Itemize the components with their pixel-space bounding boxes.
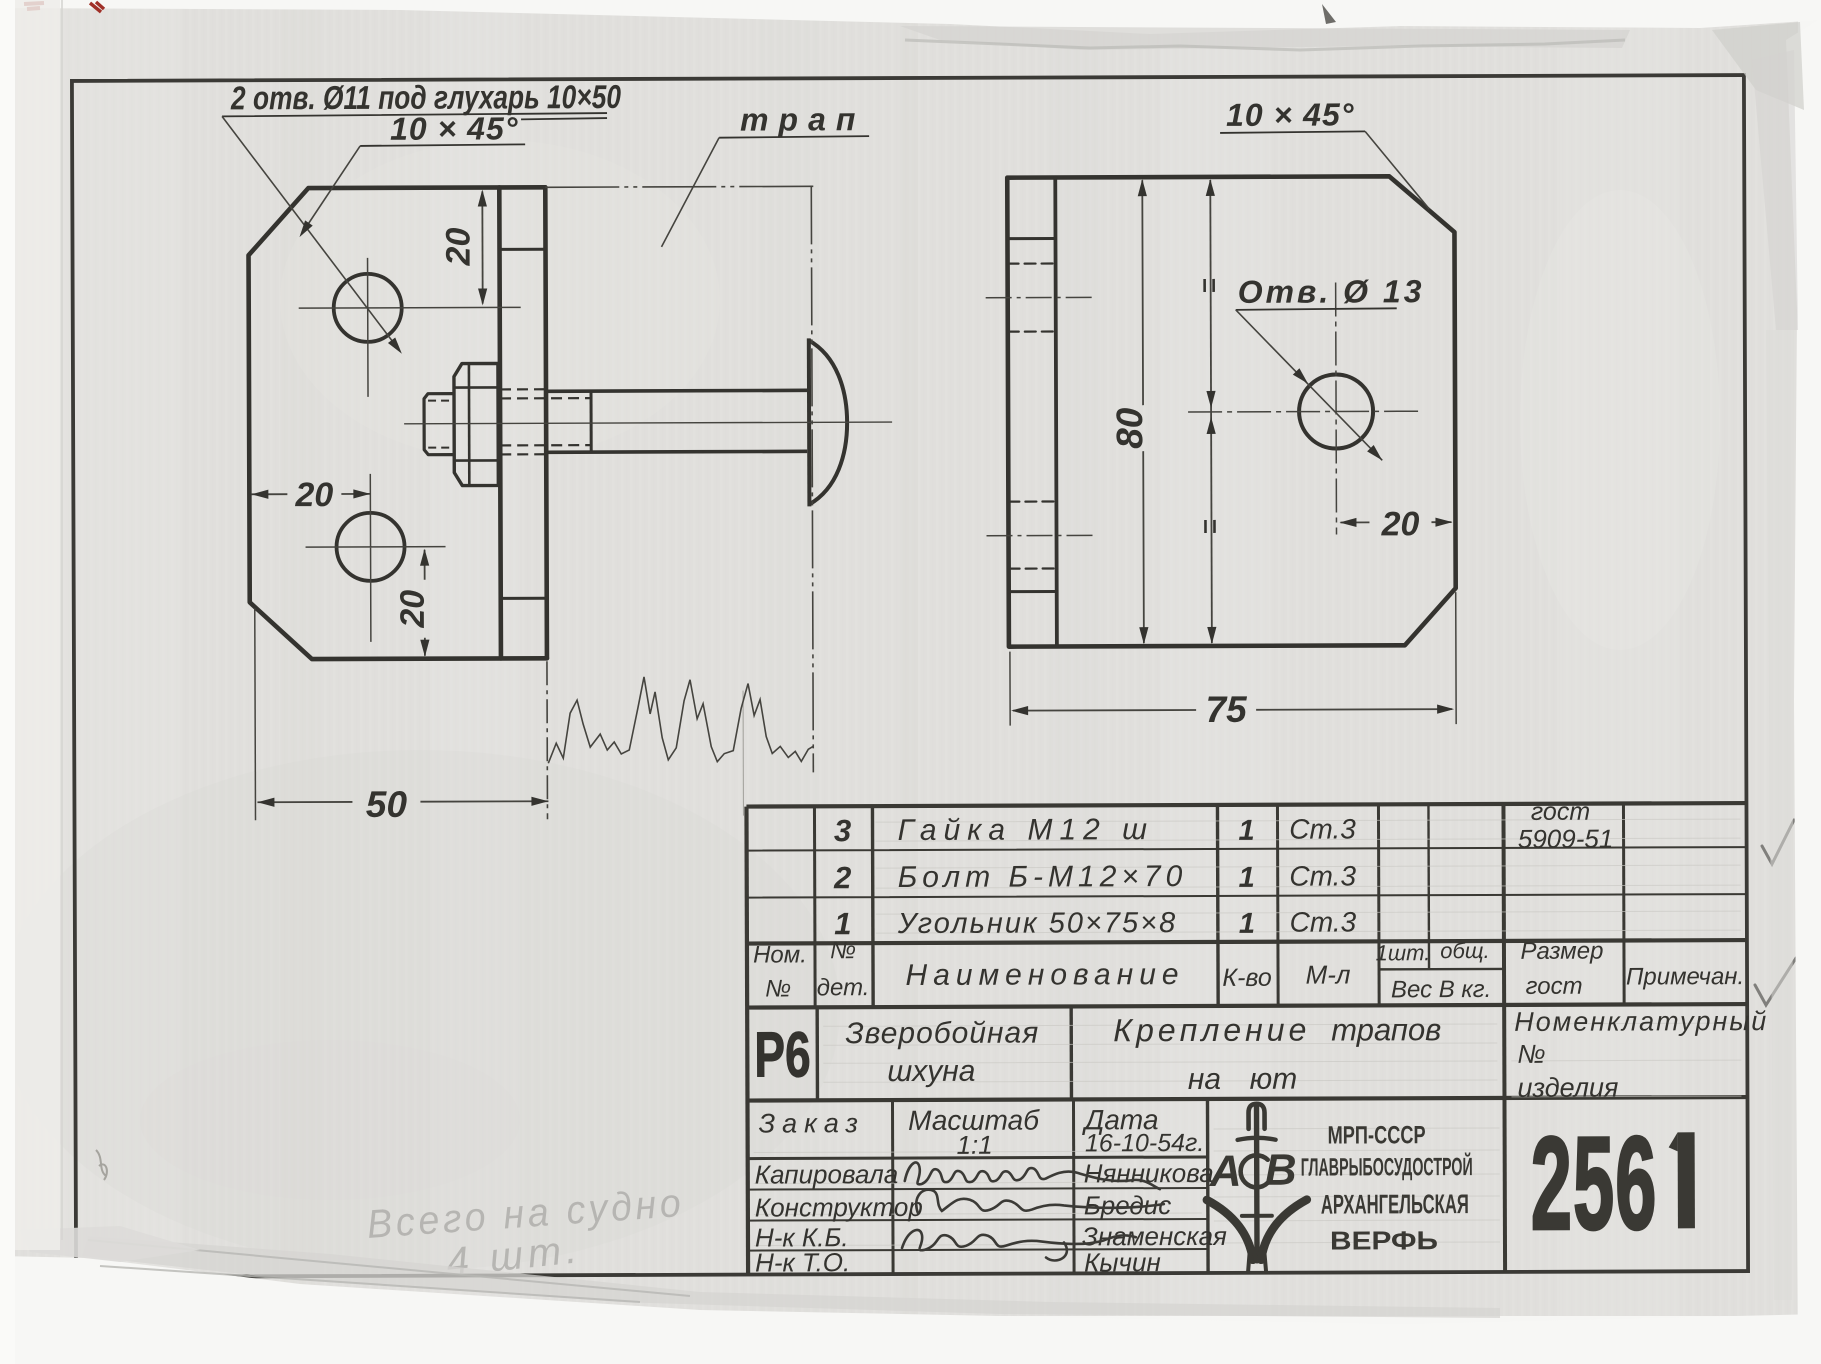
svg-text:ГЛАВРЫБОСУДОСТРОЙ: ГЛАВРЫБОСУДОСТРОЙ [1301, 1151, 1473, 1182]
svg-text:2: 2 [833, 860, 851, 895]
svg-text:Кычин: Кычин [1084, 1247, 1161, 1277]
svg-text:Примечан.: Примечан. [1626, 963, 1744, 990]
svg-text:20: 20 [294, 476, 333, 514]
svg-text:Ном.: Ном. [753, 941, 807, 968]
svg-text:МРП-СССР: МРП-СССР [1328, 1121, 1426, 1149]
svg-text:трапов: трапов [1331, 1012, 1441, 1047]
svg-text:ют: ют [1250, 1063, 1298, 1096]
svg-text:Вес В кг.: Вес В кг. [1391, 976, 1491, 1003]
svg-text:Капировала: Капировала [755, 1159, 899, 1190]
svg-text:общ.: общ. [1440, 938, 1490, 963]
svg-text:Размер: Размер [1520, 938, 1603, 965]
svg-text:В: В [1265, 1146, 1297, 1195]
svg-text:Конструктор: Конструктор [755, 1192, 923, 1223]
svg-text:5909-51: 5909-51 [1518, 824, 1614, 854]
svg-text:1: 1 [1238, 815, 1254, 847]
svg-text:№: № [830, 937, 856, 964]
svg-text:Заказ: Заказ [759, 1108, 865, 1138]
svg-text:Ст.3: Ст.3 [1289, 860, 1356, 891]
svg-text:75: 75 [1205, 689, 1248, 730]
svg-text:Ст.3: Ст.3 [1289, 813, 1356, 844]
svg-text:16-10-54г.: 16-10-54г. [1085, 1129, 1204, 1157]
svg-text:1шт.: 1шт. [1376, 940, 1431, 965]
svg-text:трап: трап [740, 101, 865, 137]
svg-text:Болт Б-М12×70: Болт Б-М12×70 [898, 860, 1188, 894]
svg-text:1: 1 [1239, 908, 1255, 940]
svg-text:гост: гост [1526, 973, 1583, 1000]
svg-text:Наименование: Наименование [905, 958, 1184, 992]
svg-text:Н-к Т.О.: Н-к Т.О. [755, 1247, 850, 1277]
svg-text:256: 256 [1531, 1109, 1658, 1258]
svg-text:изделия: изделия [1517, 1073, 1618, 1103]
svg-text:20: 20 [394, 590, 432, 629]
svg-text:Отв. Ø 13: Отв. Ø 13 [1238, 273, 1425, 310]
svg-text:ВЕРФЬ: ВЕРФЬ [1330, 1225, 1438, 1255]
svg-text:10 × 45°: 10 × 45° [390, 110, 519, 146]
svg-text:Гайка М12 ш: Гайка М12 ш [897, 813, 1154, 847]
svg-text:Ст.3: Ст.3 [1290, 906, 1357, 937]
svg-text:Зверобойная: Зверобойная [845, 1017, 1039, 1051]
svg-text:А: А [1209, 1147, 1242, 1196]
svg-text:шхуна: шхуна [887, 1055, 975, 1088]
svg-text:1: 1 [1239, 862, 1255, 894]
svg-text:на: на [1188, 1063, 1221, 1096]
svg-text:гост: гост [1531, 798, 1590, 826]
svg-text:М-л: М-л [1306, 959, 1351, 989]
svg-text:Номенклатурный: Номенклатурный [1514, 1006, 1768, 1037]
svg-text:АРХАНГЕЛЬСКАЯ: АРХАНГЕЛЬСКАЯ [1321, 1189, 1469, 1220]
svg-text:1: 1 [834, 906, 851, 941]
svg-text:20: 20 [439, 228, 477, 267]
svg-text:Крепление: Крепление [1113, 1012, 1310, 1049]
svg-text:№: № [765, 975, 791, 1002]
svg-text:Р6: Р6 [754, 1019, 811, 1090]
svg-text:3: 3 [834, 813, 851, 848]
svg-text:10 × 45°: 10 × 45° [1226, 96, 1355, 132]
svg-text:50: 50 [366, 784, 408, 825]
svg-text:20: 20 [1380, 505, 1419, 543]
svg-text:80: 80 [1109, 407, 1150, 449]
svg-text:Угольник 50×75×8: Угольник 50×75×8 [897, 907, 1177, 940]
svg-text:№: № [1517, 1039, 1545, 1069]
svg-text:К-во: К-во [1222, 964, 1272, 992]
svg-text:1:1: 1:1 [957, 1130, 993, 1160]
svg-text:дет.: дет. [817, 974, 870, 1001]
